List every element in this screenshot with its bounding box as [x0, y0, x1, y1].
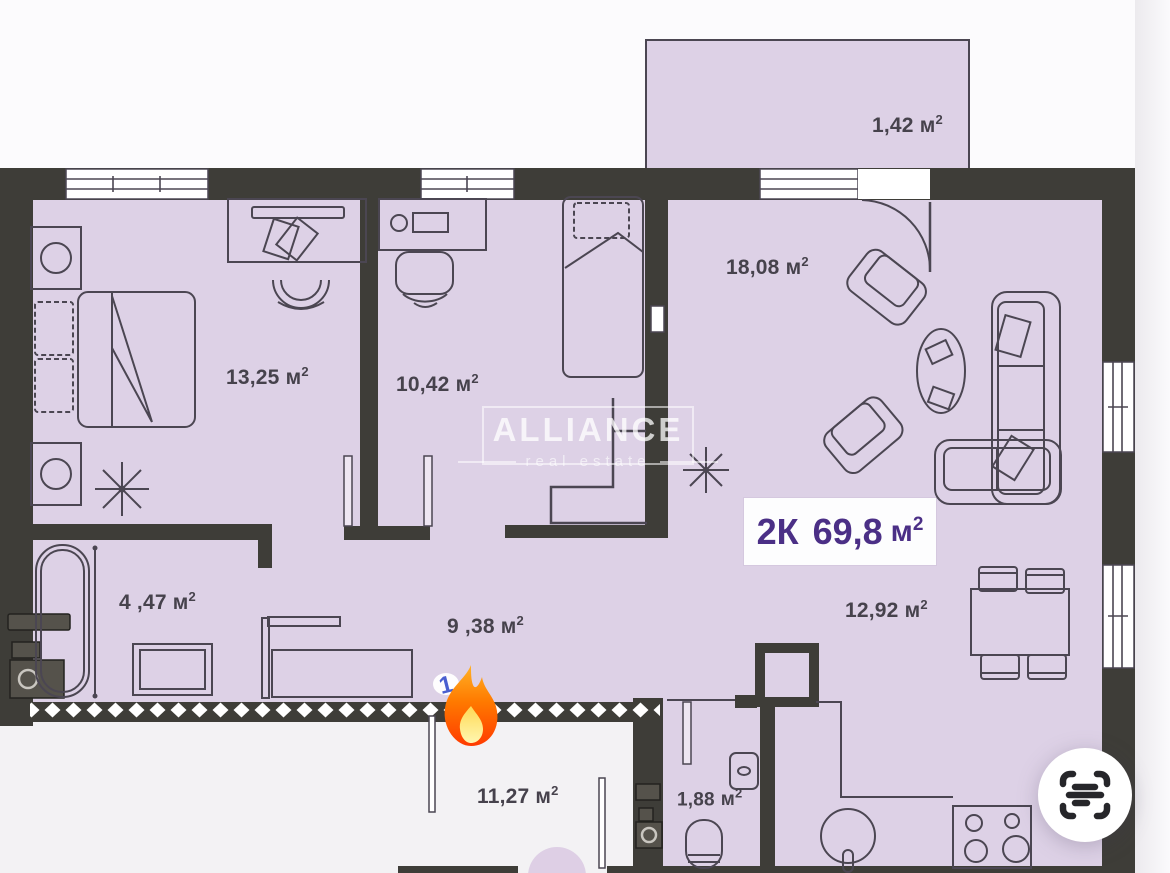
divider-door-notch — [651, 306, 664, 332]
watermark-tagline: real estate — [525, 453, 650, 470]
watermark-title: ALLIANCE — [484, 411, 692, 449]
wc-door-leaf — [683, 702, 691, 764]
fire-icon: 1 — [432, 662, 508, 756]
room-area-label-terrace: 11,27м2 — [477, 783, 559, 809]
room-area-label-bathroom: 4 ,47м2 — [119, 589, 196, 615]
floorplan-screenshot: 1,42м2 18,08м2 13,25м2 10,42м2 4 ,47м2 9… — [0, 0, 1170, 873]
bedroom1-door-leaf — [344, 456, 352, 526]
room-area-label-hallway: 9 ,38м2 — [447, 613, 524, 639]
room-area-label-wc: 1,88м2 — [677, 786, 742, 811]
window-living-right — [1103, 362, 1134, 452]
scan-button[interactable] — [1037, 747, 1133, 843]
balcony-floor — [646, 40, 969, 175]
window-bedroom2 — [421, 169, 514, 199]
watermark-rule-left — [458, 461, 516, 463]
window-bedroom1 — [66, 169, 208, 199]
badge-area: 69,8 — [813, 511, 883, 553]
scan-icon — [1037, 747, 1133, 843]
agency-watermark: ALLIANCE real estate — [458, 406, 718, 470]
fire-emoji-sticker: 1 — [432, 662, 508, 756]
glazing-hatch-band — [30, 702, 660, 722]
room-area-label-bedroom2: 10,42м2 — [396, 371, 479, 397]
room-area-label-dining: 12,92м2 — [845, 597, 928, 623]
balcony-window — [760, 169, 858, 199]
badge-unit: м2 — [891, 514, 924, 549]
watermark-rule-right — [660, 461, 718, 463]
room-area-label-bedroom1: 13,25м2 — [226, 364, 309, 390]
room-area-label-balcony: 1,42м2 — [872, 112, 943, 138]
window-dining-right — [1103, 565, 1134, 668]
room-area-label-living: 18,08м2 — [726, 254, 809, 280]
badge-rooms: 2К — [757, 511, 799, 553]
terrace-door-leaf-2 — [599, 778, 605, 868]
outside-right-strip — [1135, 0, 1170, 873]
bedroom2-door-leaf — [424, 456, 432, 526]
apartment-summary-badge: 2К 69,8 м2 — [744, 498, 936, 565]
